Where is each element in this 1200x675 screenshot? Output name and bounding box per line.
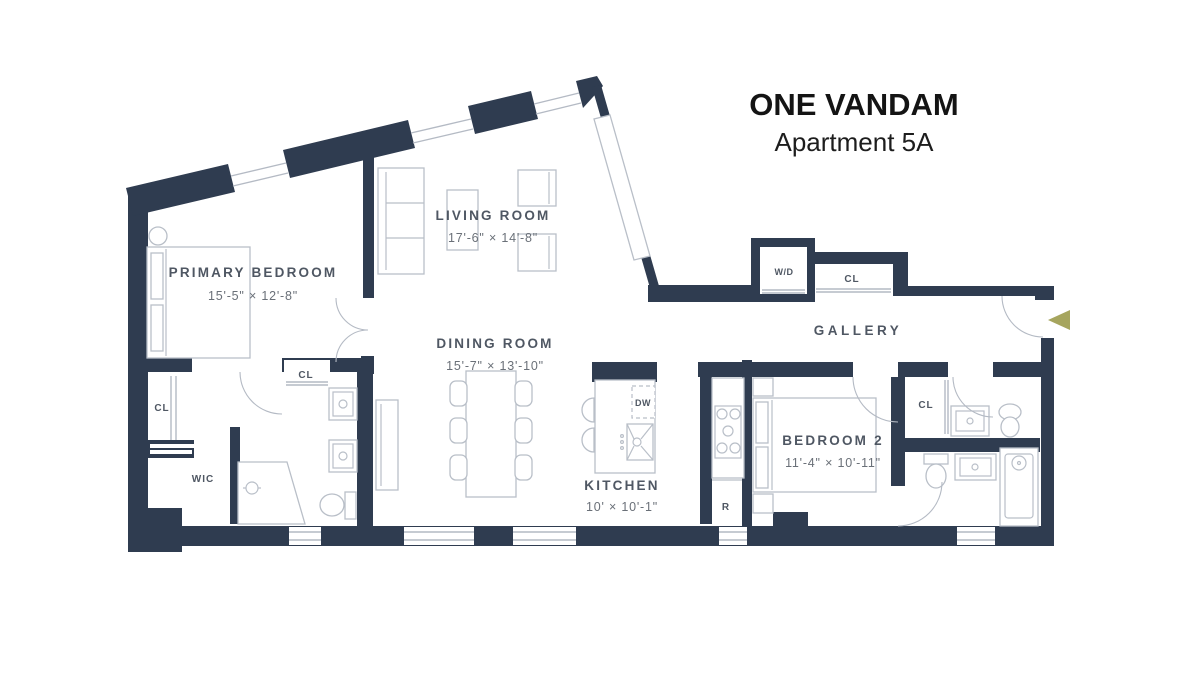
wall-gallery-thin	[908, 286, 1041, 296]
floor-plan-page: ONE VANDAM Apartment 5A LIVING ROOM 17'-…	[0, 0, 1200, 675]
window	[536, 103, 581, 114]
wall-bath-dining	[357, 372, 373, 528]
primary-bath-door-swing	[240, 372, 282, 414]
entry-door-swing	[1002, 296, 1043, 337]
round-nightstand	[149, 227, 167, 245]
entry-arrow-icon	[1048, 310, 1070, 330]
window	[534, 93, 579, 104]
closet-label: CL	[918, 400, 933, 411]
wall-bath-band	[993, 362, 1054, 377]
wall-kitchen-top	[698, 362, 853, 377]
building-title: ONE VANDAM	[749, 87, 959, 122]
dining-chair	[515, 381, 532, 406]
wall-bottom-pier	[773, 512, 808, 528]
bar-stool	[582, 398, 594, 422]
washer-dryer-label: W/D	[775, 267, 794, 277]
living-room-furniture	[378, 115, 650, 274]
pillow	[151, 253, 163, 299]
wall-primary-bedroom	[363, 145, 374, 298]
dining-room-dims: 15'-7" × 13'-10"	[446, 359, 544, 373]
dining-chair	[515, 455, 532, 480]
toilet	[924, 454, 948, 488]
pillow	[756, 402, 768, 443]
living-room-dims: 17'-6" × 14'-8"	[448, 231, 538, 245]
toilet	[320, 492, 356, 519]
cl-closet-side-wall	[893, 252, 908, 296]
armchair	[518, 170, 556, 206]
shelf-recess	[148, 440, 194, 458]
wall-bath-band	[898, 362, 948, 377]
floor-plan: ONE VANDAM Apartment 5A LIVING ROOM 17'-…	[0, 0, 1200, 675]
dining-room-label: DINING ROOM	[436, 336, 553, 351]
window	[231, 163, 286, 176]
dining-chair	[515, 418, 532, 443]
kitchen-dims: 10' × 10'-1"	[586, 500, 658, 514]
wall-kitchen-strip	[700, 377, 712, 524]
gallery-label: GALLERY	[814, 323, 903, 338]
sofa	[378, 168, 424, 274]
nightstand	[753, 494, 773, 513]
shelf-slat	[150, 450, 192, 454]
bedroom2-label: BEDROOM 2	[782, 433, 884, 448]
refrigerator-label: R	[722, 502, 730, 513]
wall-bedroom2-right	[891, 377, 905, 486]
window	[233, 173, 288, 186]
living-room-label: LIVING ROOM	[436, 208, 551, 223]
primary-double-door	[336, 298, 368, 330]
wall-bottom-corner	[128, 508, 182, 552]
kitchen-counter	[712, 378, 744, 478]
toilet	[999, 404, 1021, 437]
kitchen-fixtures	[582, 378, 744, 480]
walk-in-closet-label: WIC	[192, 474, 214, 485]
island-cap	[592, 362, 657, 382]
wall-diagonal-pier	[126, 164, 235, 216]
dining-chair	[450, 455, 467, 480]
tv-console	[594, 115, 650, 260]
bedroom2-dims: 11'-4" × 10'-11"	[785, 456, 881, 470]
dining-chair	[450, 418, 467, 443]
pillow	[756, 447, 768, 488]
wall-closet-band	[128, 358, 192, 372]
wall-bottom	[128, 526, 1054, 546]
apartment-subtitle: Apartment 5A	[775, 127, 935, 157]
closet-label: CL	[154, 403, 169, 414]
primary-bedroom-label: PRIMARY BEDROOM	[169, 265, 338, 280]
dining-table	[466, 371, 516, 497]
console-table	[376, 400, 398, 490]
dining-chair	[450, 381, 467, 406]
nightstand	[753, 378, 773, 396]
bar-stool	[582, 428, 594, 452]
dishwasher-label: DW	[635, 398, 651, 408]
pillow	[151, 305, 163, 351]
primary-bedroom-dims: 15'-5" × 12'-8"	[208, 289, 298, 303]
shower-tub	[1000, 448, 1038, 526]
wall-diagonal-pier	[468, 91, 538, 134]
kitchen-label: KITCHEN	[584, 478, 659, 493]
closet-label: CL	[844, 274, 859, 285]
wall-gallery-top	[648, 285, 755, 302]
shelf-slat	[150, 444, 196, 448]
dining-room-furniture	[376, 371, 532, 497]
wall-entry-jamb	[1035, 286, 1054, 300]
closet-label: CL	[298, 370, 313, 381]
